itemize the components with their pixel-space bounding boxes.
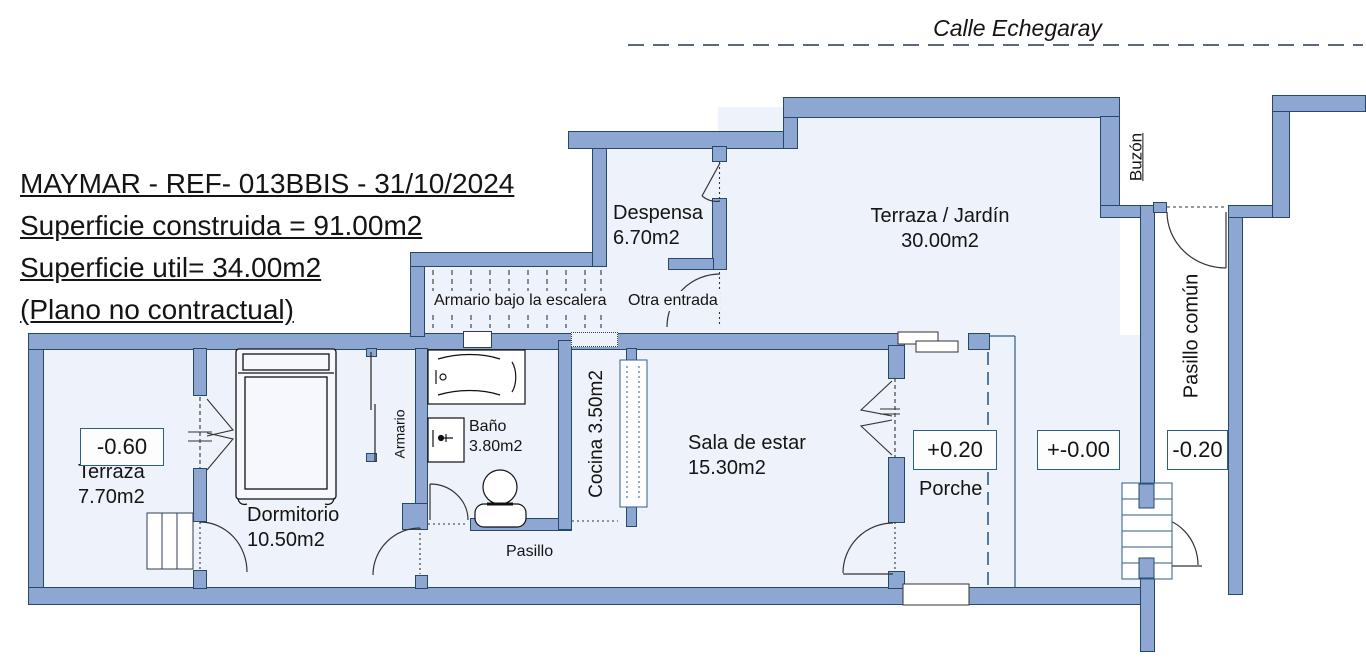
room-label-buzon: Buzón [1125, 133, 1146, 181]
room-area: 30.00m2 [850, 229, 1030, 254]
room-name: Sala de estar [688, 431, 806, 456]
room-label-cocina: Cocina 3.50m2 [585, 368, 609, 500]
room-name: Dormitorio [247, 503, 339, 528]
wall [415, 575, 428, 589]
room-label-sala: Sala de estar 15.30m2 [688, 431, 806, 481]
wall [888, 345, 905, 379]
room-name: Terraza / Jardín [850, 204, 1030, 229]
wall [558, 340, 572, 530]
room-area: 15.30m2 [688, 456, 806, 481]
wall [783, 97, 1120, 118]
wall [366, 348, 377, 357]
terraza-pasillo-door-arc [1152, 517, 1202, 566]
wall [193, 570, 207, 589]
wall [626, 348, 637, 361]
wall [1272, 95, 1290, 218]
floor-plan: Calle Echegaray MAYMAR - REF- 013BBIS - … [0, 0, 1366, 671]
wall [888, 457, 905, 523]
wall [28, 587, 1155, 605]
title-reference: MAYMAR - REF- 013BBIS - 31/10/2024 [20, 166, 514, 201]
room-label-dormitorio: Dormitorio 10.50m2 [247, 503, 339, 553]
room-area: 6.70m2 [613, 226, 703, 251]
room-label-despensa: Despensa 6.70m2 [613, 201, 703, 251]
pasillo-comun-door-arc [1167, 212, 1226, 268]
title-usable-area: Superficie util= 34.00m2 [20, 250, 514, 285]
room-label-bano: Baño 3.80m2 [469, 417, 522, 457]
wall [568, 131, 790, 149]
wall [668, 258, 714, 270]
title-built-area: Superficie construida = 91.00m2 [20, 208, 514, 243]
level-badge-exterior: +-0.00 [1037, 430, 1120, 470]
wall [193, 348, 207, 396]
room-area: 3.80m2 [469, 437, 522, 457]
room-name: Despensa [613, 201, 703, 226]
wall [1153, 202, 1167, 213]
level-badge-porche: +0.20 [913, 430, 997, 470]
wall [470, 518, 572, 531]
wall [712, 198, 727, 270]
wall [626, 500, 637, 527]
wall [1140, 205, 1155, 652]
cocina-window [571, 332, 618, 347]
porch-pillar [968, 333, 990, 350]
room-label-pasillo-comun: Pasillo común [1180, 274, 1205, 399]
room-area: 10.50m2 [247, 528, 339, 553]
room-label-armario: Armario [391, 409, 409, 458]
label-armario-bajo-escalera: Armario bajo la escalera [432, 291, 609, 311]
room-area: 7.70m2 [78, 485, 145, 510]
wall [1228, 205, 1243, 595]
room-label-terraza-jardin: Terraza / Jardín 30.00m2 [850, 204, 1030, 254]
wall [1100, 116, 1120, 218]
wall [712, 146, 727, 162]
wall [1272, 95, 1366, 112]
room-name: Baño [469, 417, 522, 437]
level-badge-terraza: -0.60 [80, 428, 164, 466]
street-label: Calle Echegaray [905, 14, 1130, 43]
wall [193, 468, 207, 522]
room-label-pasillo: Pasillo [506, 542, 553, 562]
wall [592, 146, 607, 267]
wall [28, 333, 44, 605]
wall [366, 453, 377, 462]
wall [402, 503, 428, 530]
label-otra-entrada: Otra entrada [626, 291, 720, 311]
wall [888, 571, 905, 589]
level-badge-pasillo-comun: -0.20 [1167, 430, 1228, 470]
room-label-porche: Porche [919, 477, 982, 502]
room-label-terraza: Terraza 7.70m2 [78, 460, 145, 510]
